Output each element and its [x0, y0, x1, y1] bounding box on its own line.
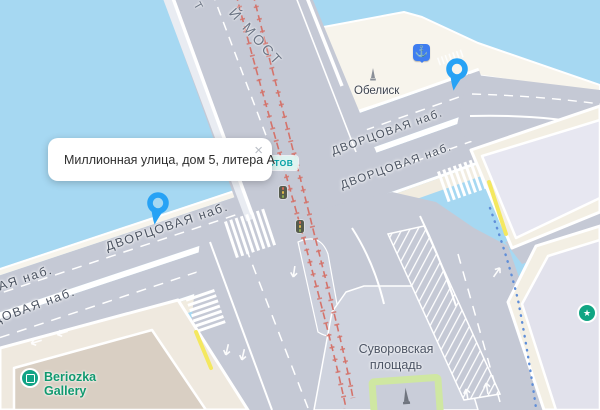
- address-popup-text: Миллионная улица, дом 5, литера А: [64, 153, 275, 167]
- close-icon[interactable]: ×: [254, 143, 263, 158]
- map-tiles: [0, 0, 600, 410]
- beriozka-gallery-label: Beriozka Gallery: [44, 370, 96, 399]
- obelisk-icon: [368, 68, 378, 84]
- pier-anchor-icon[interactable]: ⚓: [413, 44, 430, 61]
- beriozka-gallery-poi[interactable]: Beriozka Gallery: [22, 370, 96, 399]
- traffic-light-icon: [279, 186, 287, 199]
- park-square: [372, 377, 440, 410]
- address-popup[interactable]: Миллионная улица, дом 5, литера А ×: [48, 138, 272, 181]
- obelisk-label[interactable]: Обелиск: [354, 85, 399, 97]
- map-pin-right[interactable]: [441, 55, 475, 95]
- map-pin-left[interactable]: [142, 189, 176, 229]
- map-canvas[interactable]: ДВОРЦОВАЯ наб. ДВОРЦОВАЯ наб. ДВОРЦОВАЯ …: [0, 0, 600, 410]
- gallery-icon: [22, 370, 38, 386]
- suvorov-square-label: Суворовская площадь: [350, 342, 442, 373]
- star-poi-icon[interactable]: ★: [579, 305, 595, 321]
- traffic-light-icon: [296, 220, 304, 233]
